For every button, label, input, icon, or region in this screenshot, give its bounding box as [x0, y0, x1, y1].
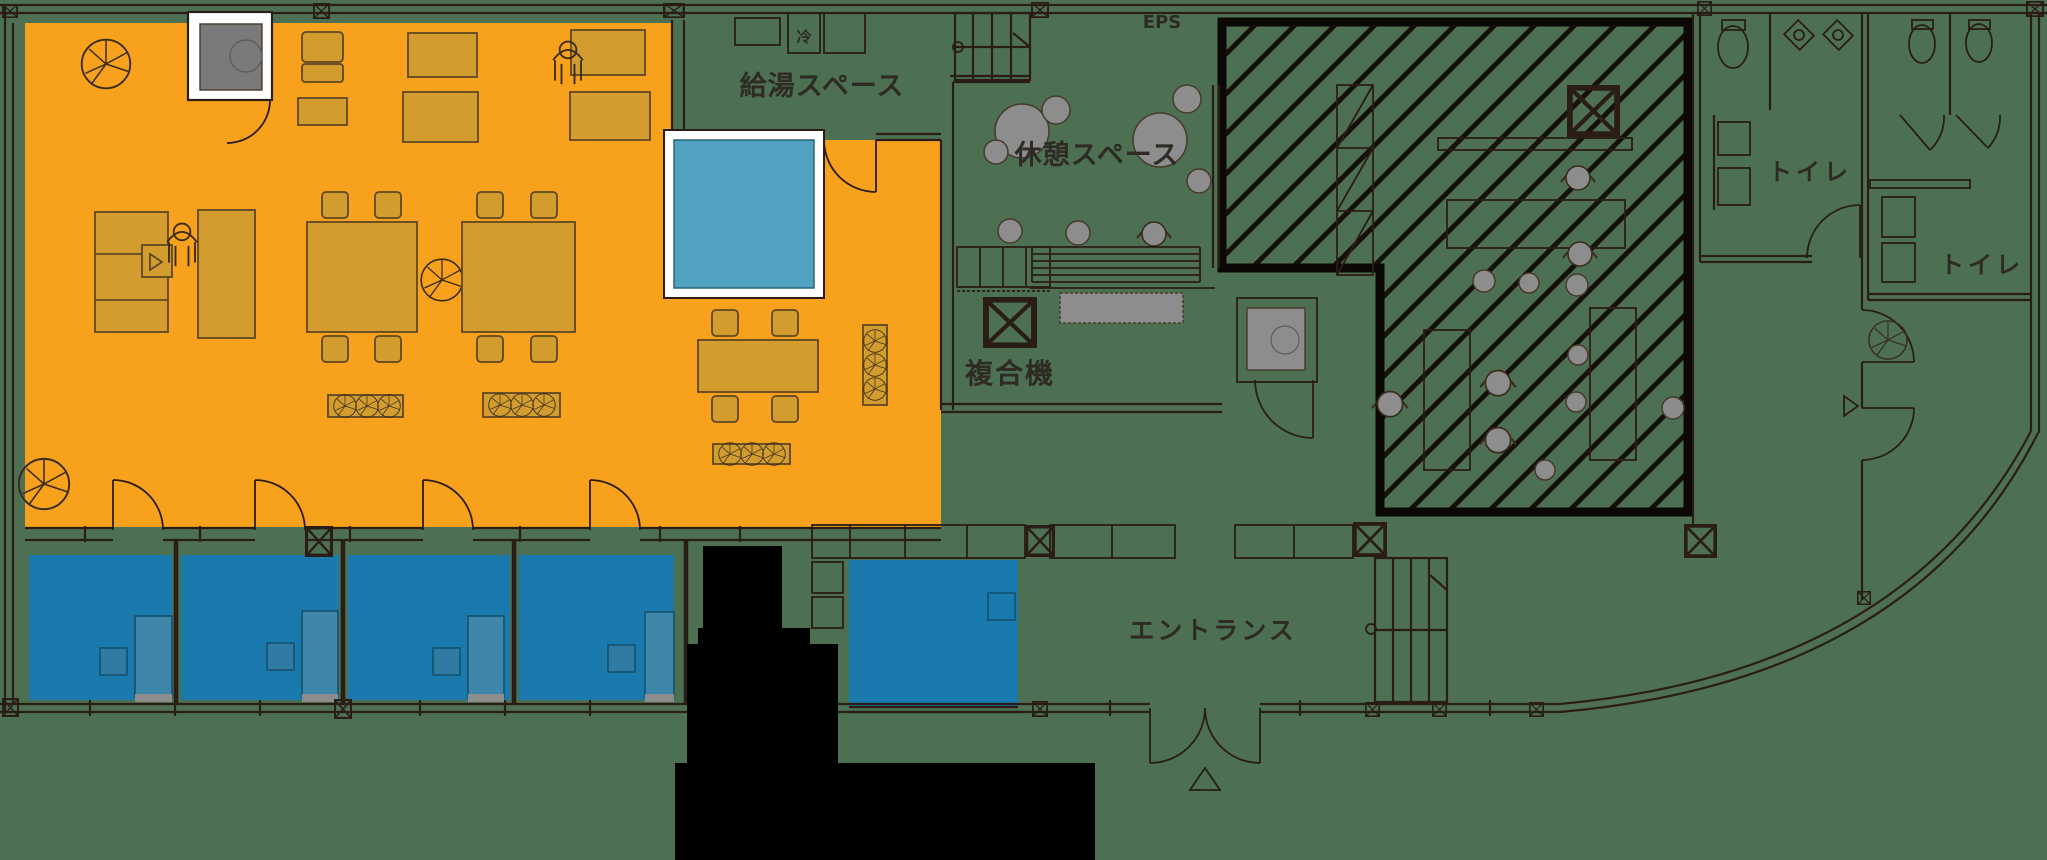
floor-plan-page: 給湯スペース 休憩スペース 複合機 エントランス トイレ トイレ EPS 冷 — [0, 0, 2047, 860]
meeting-booth-5 — [849, 560, 1018, 707]
copier-label: 複合機 — [965, 357, 1055, 390]
entrance-label: エントランス — [1129, 616, 1297, 645]
toilet-right-label: トイレ — [1940, 251, 2024, 279]
rest-space-label: 休憩スペース — [1014, 139, 1180, 171]
phone-booth-center — [1237, 298, 1317, 382]
focus-room-zone — [664, 130, 824, 298]
refrigerator-label: 冷 — [796, 28, 811, 46]
kitchen-space-label: 給湯スペース — [740, 70, 905, 102]
floor-plan: 給湯スペース 休憩スペース 複合機 エントランス トイレ トイレ EPS 冷 — [0, 0, 2047, 860]
toilet-left-label: トイレ — [1768, 158, 1852, 186]
phone-booth-topleft — [188, 12, 272, 100]
eps-label: EPS — [1143, 12, 1181, 33]
